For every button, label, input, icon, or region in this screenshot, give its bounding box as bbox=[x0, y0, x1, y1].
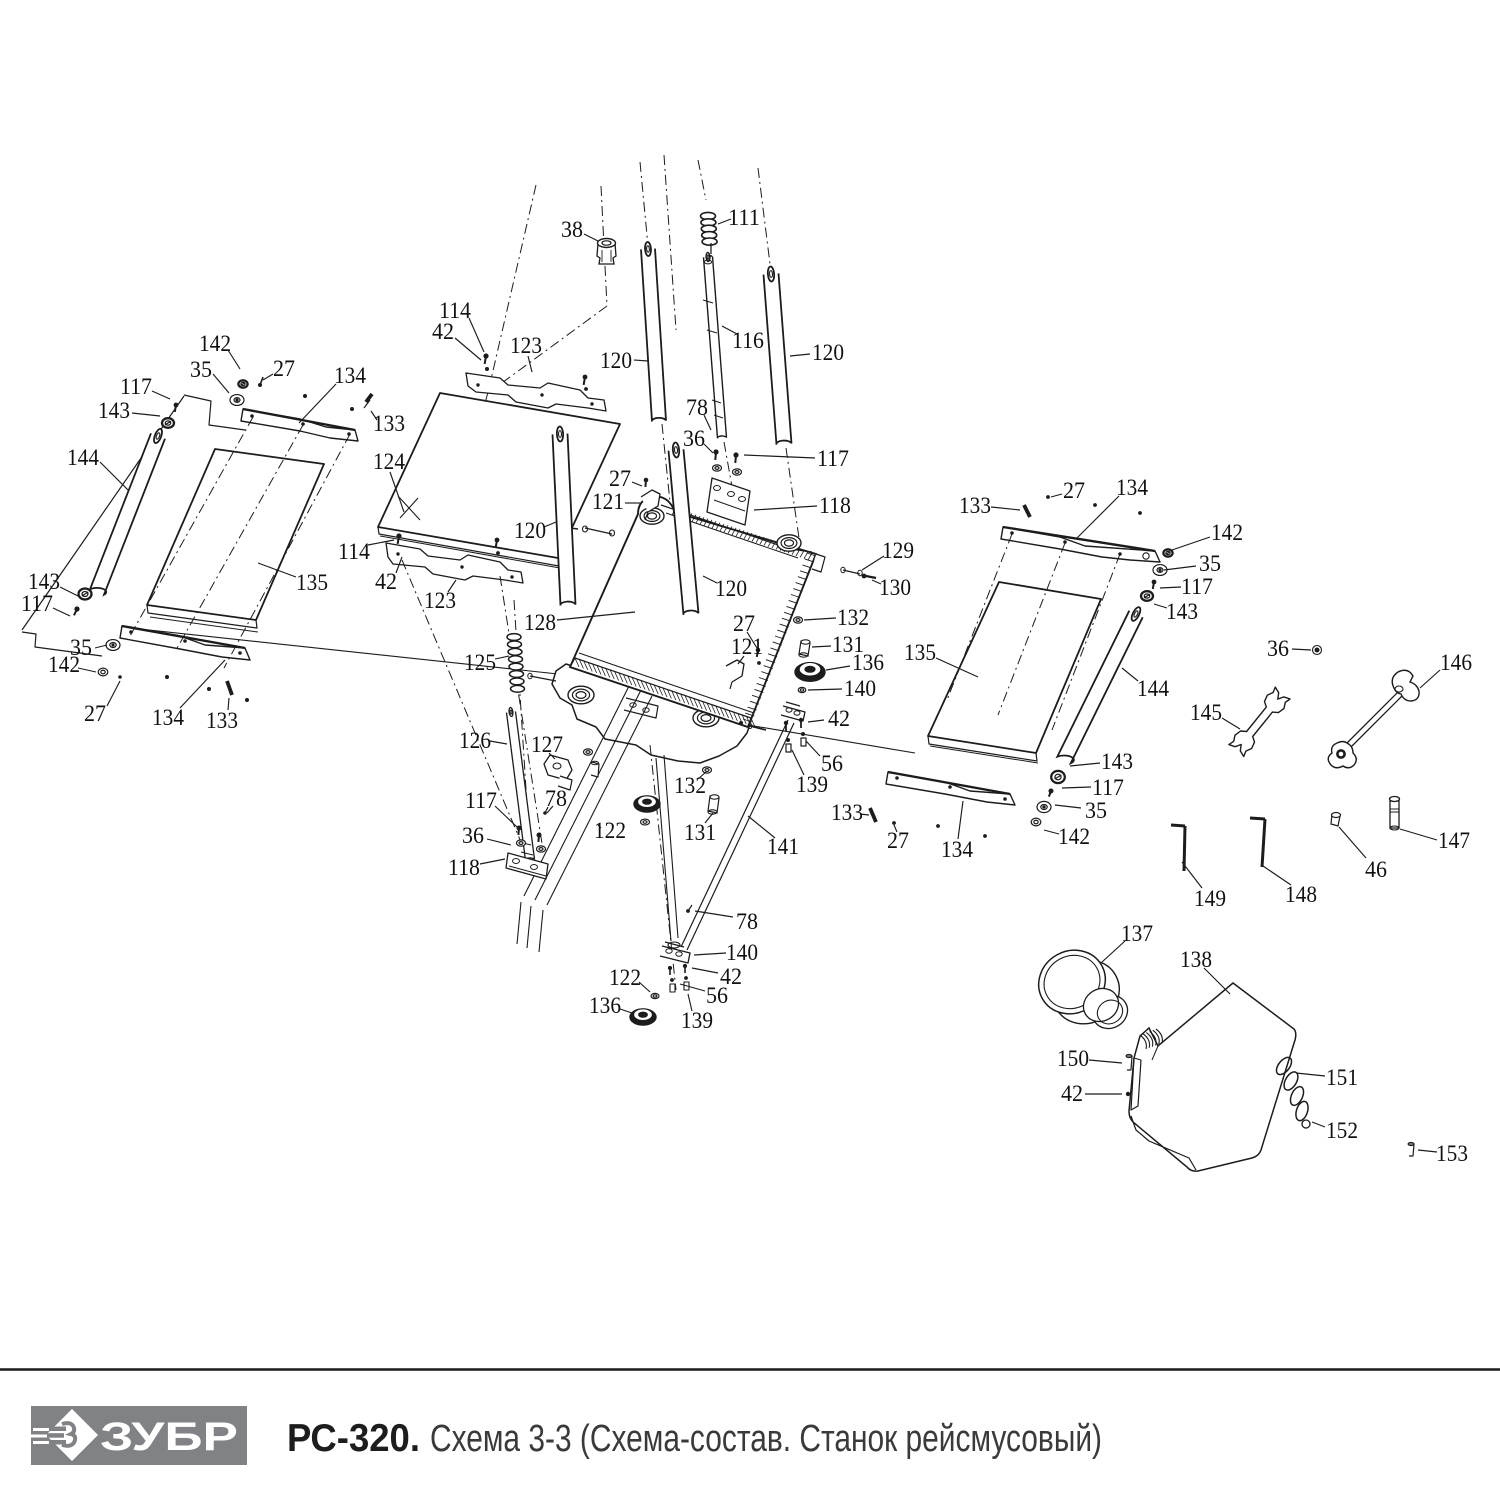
svg-text:42: 42 bbox=[1061, 1081, 1083, 1106]
svg-text:78: 78 bbox=[686, 395, 708, 420]
svg-text:27: 27 bbox=[609, 466, 631, 491]
svg-text:117: 117 bbox=[1092, 775, 1124, 800]
svg-text:142: 142 bbox=[1211, 520, 1243, 545]
svg-text:46: 46 bbox=[1365, 857, 1387, 882]
svg-text:122: 122 bbox=[609, 965, 641, 990]
svg-text:42: 42 bbox=[828, 706, 850, 731]
svg-text:141: 141 bbox=[767, 834, 799, 859]
svg-text:145: 145 bbox=[1190, 700, 1222, 725]
svg-text:27: 27 bbox=[733, 611, 755, 636]
svg-text:124: 124 bbox=[373, 449, 405, 474]
svg-text:134: 134 bbox=[1116, 475, 1148, 500]
svg-text:147: 147 bbox=[1438, 828, 1470, 853]
svg-text:122: 122 bbox=[594, 818, 626, 843]
svg-text:117: 117 bbox=[120, 374, 152, 399]
svg-text:140: 140 bbox=[844, 676, 876, 701]
svg-text:27: 27 bbox=[84, 701, 106, 726]
svg-text:36: 36 bbox=[462, 823, 484, 848]
svg-text:36: 36 bbox=[1267, 636, 1289, 661]
svg-text:143: 143 bbox=[1166, 599, 1198, 624]
svg-text:120: 120 bbox=[812, 340, 844, 365]
svg-text:27: 27 bbox=[1063, 478, 1085, 503]
svg-text:128: 128 bbox=[524, 610, 556, 635]
svg-text:120: 120 bbox=[600, 348, 632, 373]
svg-text:35: 35 bbox=[190, 357, 212, 382]
svg-text:42: 42 bbox=[375, 569, 397, 594]
svg-text:134: 134 bbox=[152, 705, 184, 730]
svg-text:150: 150 bbox=[1057, 1046, 1089, 1071]
svg-text:117: 117 bbox=[465, 788, 497, 813]
svg-text:132: 132 bbox=[837, 605, 869, 630]
svg-text:153: 153 bbox=[1436, 1141, 1468, 1166]
svg-text:135: 135 bbox=[904, 640, 936, 665]
svg-text:121: 121 bbox=[731, 634, 763, 659]
svg-text:152: 152 bbox=[1326, 1118, 1358, 1143]
svg-text:117: 117 bbox=[1181, 574, 1213, 599]
svg-text:35: 35 bbox=[1199, 551, 1221, 576]
svg-text:133: 133 bbox=[206, 708, 238, 733]
svg-text:139: 139 bbox=[796, 772, 828, 797]
svg-text:139: 139 bbox=[681, 1008, 713, 1033]
svg-text:42: 42 bbox=[432, 319, 454, 344]
svg-text:120: 120 bbox=[715, 576, 747, 601]
svg-text:111: 111 bbox=[728, 205, 760, 230]
svg-text:137: 137 bbox=[1121, 921, 1153, 946]
svg-text:143: 143 bbox=[1101, 749, 1133, 774]
svg-text:142: 142 bbox=[199, 331, 231, 356]
svg-text:136: 136 bbox=[589, 993, 621, 1018]
svg-text:142: 142 bbox=[1058, 824, 1090, 849]
svg-text:133: 133 bbox=[373, 411, 405, 436]
svg-text:135: 135 bbox=[296, 570, 328, 595]
svg-text:27: 27 bbox=[273, 356, 295, 381]
svg-text:146: 146 bbox=[1440, 650, 1472, 675]
svg-text:134: 134 bbox=[941, 837, 973, 862]
svg-text:121: 121 bbox=[592, 489, 624, 514]
svg-text:125: 125 bbox=[464, 650, 496, 675]
svg-text:129: 129 bbox=[882, 538, 914, 563]
svg-text:Схема 3-3 (Схема-состав. Стано: Схема 3-3 (Схема-состав. Станок рейсмусо… bbox=[430, 1418, 1102, 1460]
svg-text:27: 27 bbox=[887, 828, 909, 853]
svg-text:126: 126 bbox=[459, 728, 491, 753]
svg-text:136: 136 bbox=[852, 650, 884, 675]
svg-text:133: 133 bbox=[831, 800, 863, 825]
svg-text:123: 123 bbox=[424, 588, 456, 613]
svg-text:38: 38 bbox=[561, 217, 583, 242]
svg-text:78: 78 bbox=[736, 909, 758, 934]
svg-text:143: 143 bbox=[98, 398, 130, 423]
svg-text:35: 35 bbox=[1085, 798, 1107, 823]
svg-text:151: 151 bbox=[1326, 1065, 1358, 1090]
svg-text:117: 117 bbox=[817, 446, 849, 471]
svg-text:56: 56 bbox=[706, 983, 728, 1008]
svg-text:130: 130 bbox=[879, 575, 911, 600]
svg-text:149: 149 bbox=[1194, 886, 1226, 911]
svg-text:144: 144 bbox=[67, 445, 99, 470]
svg-text:114: 114 bbox=[338, 539, 370, 564]
svg-text:120: 120 bbox=[514, 518, 546, 543]
svg-text:140: 140 bbox=[726, 940, 758, 965]
svg-text:РС-320.: РС-320. bbox=[287, 1417, 420, 1460]
svg-text:36: 36 bbox=[683, 426, 705, 451]
svg-text:133: 133 bbox=[959, 493, 991, 518]
svg-text:132: 132 bbox=[674, 773, 706, 798]
svg-text:118: 118 bbox=[448, 855, 480, 880]
svg-text:142: 142 bbox=[48, 652, 80, 677]
svg-text:78: 78 bbox=[545, 786, 567, 811]
svg-text:116: 116 bbox=[732, 328, 764, 353]
svg-text:131: 131 bbox=[684, 820, 716, 845]
svg-text:123: 123 bbox=[510, 333, 542, 358]
svg-text:134: 134 bbox=[334, 363, 366, 388]
svg-text:ЗУБР: ЗУБР bbox=[100, 1415, 238, 1459]
svg-text:117: 117 bbox=[21, 591, 53, 616]
svg-text:127: 127 bbox=[531, 732, 563, 757]
svg-text:118: 118 bbox=[819, 493, 851, 518]
svg-text:138: 138 bbox=[1180, 947, 1212, 972]
svg-text:144: 144 bbox=[1137, 676, 1169, 701]
svg-text:148: 148 bbox=[1285, 882, 1317, 907]
